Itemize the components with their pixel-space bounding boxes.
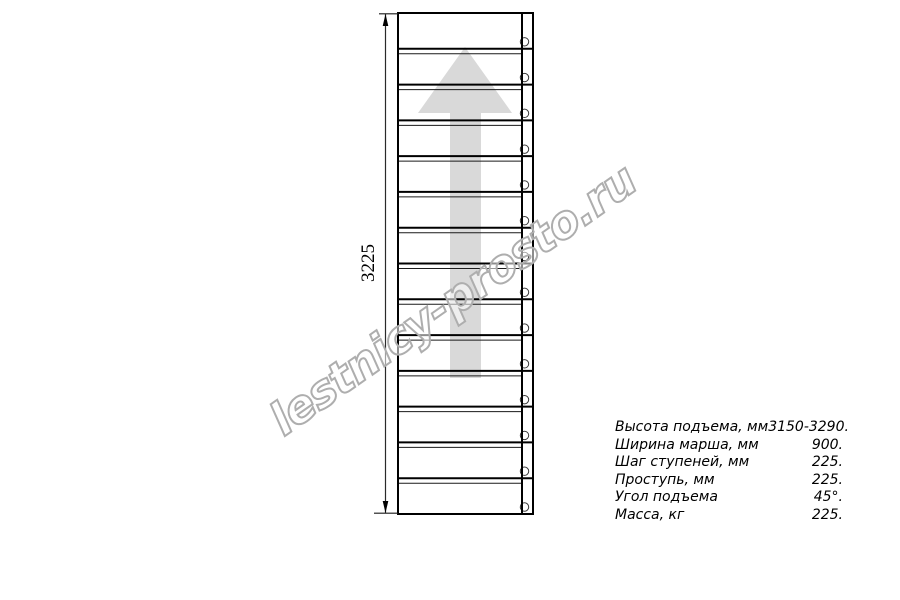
spec-value: 900. xyxy=(812,437,843,455)
spec-label: Угол подъема xyxy=(615,489,718,507)
spec-value: 225. xyxy=(812,454,843,472)
spec-value: 225. xyxy=(812,472,843,490)
spec-label: Масса, кг xyxy=(615,507,684,525)
spec-row: Высота подъема, мм 3150-3290. xyxy=(615,419,843,437)
dimension-arrowhead-top xyxy=(383,14,389,26)
spec-value: 3150-3290. xyxy=(768,419,849,437)
spec-row: Угол подъема 45°. xyxy=(615,489,843,507)
dimension-arrowhead-bottom xyxy=(383,501,389,513)
spec-label: Ширина марша, мм xyxy=(615,437,759,455)
spec-value: 225. xyxy=(812,507,843,525)
dimension-label: 3225 xyxy=(358,244,379,282)
spec-label: Высота подъема, мм xyxy=(615,419,768,437)
spec-row: Проступь, мм 225. xyxy=(615,472,843,490)
spec-value: 45°. xyxy=(814,489,843,507)
spec-row: Шаг ступеней, мм 225. xyxy=(615,454,843,472)
spec-label: Шаг ступеней, мм xyxy=(615,454,749,472)
spec-row: Ширина марша, мм 900. xyxy=(615,437,843,455)
spec-row: Масса, кг 225. xyxy=(615,507,843,525)
spec-table: Высота подъема, мм 3150-3290. Ширина мар… xyxy=(615,419,843,524)
dimension-group: 3225 xyxy=(358,14,398,513)
spec-label: Проступь, мм xyxy=(615,472,715,490)
direction-up-arrow xyxy=(418,47,512,378)
